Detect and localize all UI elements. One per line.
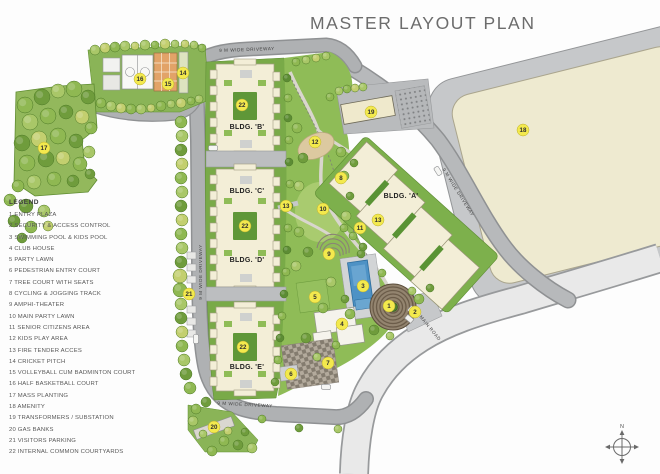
tree-icon (190, 41, 198, 49)
tree-icon (302, 56, 310, 64)
plan-marker-4: 4 (336, 318, 348, 330)
legend-heading: LEGEND (9, 199, 135, 206)
parking-bay (187, 276, 196, 283)
tree-icon (408, 287, 416, 295)
tree-icon (116, 103, 126, 113)
plan-marker-5: 5 (309, 291, 321, 303)
tree-icon (298, 153, 308, 163)
plan-marker-21: 21 (183, 288, 195, 300)
tree-icon (176, 340, 188, 352)
building-c-label: BLDG. 'C' (230, 188, 265, 195)
tree-icon (292, 123, 302, 133)
tree-icon (14, 135, 30, 151)
plan-marker-2: 2 (409, 306, 421, 318)
page-title: MASTER LAYOUT PLAN (310, 13, 536, 34)
connector-d-e (206, 287, 286, 301)
tree-icon (100, 43, 110, 53)
tree-icon (47, 172, 61, 186)
tree-icon (301, 333, 311, 343)
svg-text:18: 18 (520, 127, 527, 134)
tree-icon (201, 397, 211, 407)
legend-items: 1 ENTRY PLAZA2 SECURITY & ACCESS CONTROL… (9, 210, 135, 459)
legend-item: 21 VISITORS PARKING (9, 436, 135, 447)
plan-marker-9: 9 (323, 248, 335, 260)
parking-bay (187, 264, 196, 271)
tree-icon (187, 97, 195, 105)
tree-icon (359, 83, 367, 91)
tree-icon (90, 45, 100, 55)
svg-text:13: 13 (283, 203, 290, 210)
tree-icon (326, 93, 334, 101)
plan-marker-3: 3 (357, 280, 369, 292)
plan-marker-12: 12 (309, 136, 321, 148)
tree-icon (175, 228, 187, 240)
tree-icon (136, 104, 146, 114)
tree-icon (176, 242, 188, 254)
tree-icon (224, 427, 232, 435)
svg-text:19: 19 (368, 109, 375, 116)
tree-icon (258, 415, 266, 423)
tree-icon (334, 425, 342, 433)
legend-item: 17 MASS PLANTING (9, 391, 135, 402)
tree-icon (66, 81, 82, 97)
tree-icon (180, 368, 192, 380)
plan-marker-18: 18 (517, 124, 529, 136)
legend-item: 3 SWIMMING POOL & KIDS POOL (9, 233, 135, 244)
legend-item: 2 SECURITY & ACCESS CONTROL (9, 221, 135, 232)
tree-icon (386, 332, 394, 340)
legend-item: 20 GAS BANKS (9, 425, 135, 436)
tree-icon (73, 157, 87, 171)
tree-icon (241, 428, 249, 436)
car-icon (321, 384, 330, 389)
plan-marker-14: 14 (177, 67, 189, 79)
tree-icon (271, 378, 279, 386)
tree-icon (51, 84, 65, 98)
legend-item: 13 FIRE TENDER ACCES (9, 346, 135, 357)
svg-text:10: 10 (320, 206, 327, 213)
tree-icon (278, 312, 286, 320)
tree-icon (160, 39, 170, 49)
tree-icon (284, 114, 292, 122)
tree-icon (67, 175, 79, 187)
svg-text:22: 22 (239, 102, 246, 109)
svg-text:20: 20 (211, 424, 218, 431)
tree-icon (176, 214, 188, 226)
svg-text:5: 5 (313, 294, 317, 301)
tree-icon (175, 298, 187, 310)
tree-icon (59, 105, 73, 119)
tree-icon (345, 309, 355, 319)
tree-icon (175, 144, 187, 156)
tree-icon (294, 227, 304, 237)
tree-icon (294, 181, 304, 191)
tree-icon (175, 200, 187, 212)
tree-icon (284, 94, 292, 102)
tree-icon (175, 312, 187, 324)
tree-icon (195, 95, 203, 103)
tree-icon (151, 41, 159, 49)
legend-item: 14 CRICKET PITCH (9, 357, 135, 368)
tree-icon (176, 186, 188, 198)
tree-icon (167, 100, 175, 108)
tree-icon (274, 356, 282, 364)
tree-icon (332, 341, 340, 349)
tree-icon (312, 54, 320, 62)
tree-icon (110, 42, 120, 52)
legend-item: 19 TRANSFORMERS / SUBSTATION (9, 413, 135, 424)
tree-icon (340, 224, 348, 232)
tree-icon (19, 155, 35, 171)
tree-icon (27, 175, 41, 189)
parking-bay (187, 252, 196, 259)
tree-icon (175, 172, 187, 184)
svg-text:1: 1 (387, 303, 391, 310)
tree-icon (199, 430, 207, 438)
car-icon (209, 146, 218, 151)
svg-text:9: 9 (327, 251, 331, 258)
svg-text:22: 22 (240, 344, 247, 351)
tree-icon (378, 269, 386, 277)
car-icon (433, 166, 442, 176)
tree-icon (284, 224, 292, 232)
svg-text:21: 21 (186, 291, 193, 298)
tree-icon (188, 416, 198, 426)
building-b-label: BLDG. 'B' (230, 124, 265, 131)
tree-icon (120, 41, 130, 51)
tree-icon (286, 180, 294, 188)
tree-icon (357, 250, 365, 258)
tree-icon (171, 40, 179, 48)
svg-text:16: 16 (137, 76, 144, 83)
legend-item: 18 AMENITY (9, 402, 135, 413)
tree-icon (181, 40, 189, 48)
tree-icon (280, 290, 288, 298)
tree-icon (351, 84, 359, 92)
svg-text:11: 11 (357, 225, 364, 232)
tree-icon (56, 151, 70, 165)
svg-text:12: 12 (312, 139, 319, 146)
plan-marker-11: 11 (354, 222, 366, 234)
tree-icon (126, 104, 136, 114)
tree-icon (85, 122, 97, 134)
tree-icon (85, 169, 95, 179)
legend-item: 10 MAIN PARTY LAWN (9, 312, 135, 323)
tree-icon (50, 128, 66, 144)
svg-text:2: 2 (413, 309, 417, 316)
tree-icon (219, 436, 229, 446)
tree-icon (295, 424, 303, 432)
legend-item: 15 VOLLEYBALL CUM BADMINTON COURT (9, 368, 135, 379)
plan-marker-15: 15 (162, 78, 174, 90)
tree-icon (156, 101, 166, 111)
legend-item: 12 KIDS PLAY AREA (9, 334, 135, 345)
tree-icon (207, 446, 217, 456)
tree-icon (247, 443, 257, 453)
legend-item: 9 AMPHI-THEATER (9, 300, 135, 311)
master-layout-plan-page: 9 M WIDE DRIVEWAY9 M WIDE DRIVEWAY9 M WI… (0, 0, 660, 474)
plan-marker-22: 22 (236, 99, 248, 111)
tree-icon (322, 52, 330, 60)
tree-icon (22, 114, 38, 130)
legend-item: 6 PEDESTRIAN ENTRY COURT (9, 266, 135, 277)
building-a-label: BLDG. 'A' (384, 193, 419, 200)
road-label: 9 M WIDE DRIVEWAY (198, 244, 203, 300)
legend-item: 4 CLUB HOUSE (9, 244, 135, 255)
tree-icon (283, 246, 291, 254)
tree-icon (313, 353, 321, 361)
plan-marker-17: 17 (38, 142, 50, 154)
tree-icon (176, 98, 186, 108)
compass-icon: N (605, 424, 639, 464)
tree-icon (83, 146, 95, 158)
tree-icon (75, 110, 89, 124)
svg-text:22: 22 (242, 223, 249, 230)
tree-icon (173, 269, 187, 283)
tree-icon (12, 180, 24, 192)
legend: LEGEND 1 ENTRY PLAZA2 SECURITY & ACCESS … (9, 199, 135, 459)
tree-icon (303, 247, 313, 257)
tree-icon (175, 116, 187, 128)
tree-icon (147, 104, 155, 112)
plan-marker-1: 1 (383, 300, 395, 312)
plan-marker-22: 22 (237, 341, 249, 353)
tree-icon (349, 232, 357, 240)
tree-icon (343, 85, 351, 93)
tree-icon (184, 382, 196, 394)
tree-icon (318, 303, 328, 313)
svg-text:13: 13 (375, 217, 382, 224)
svg-text:4: 4 (340, 321, 344, 328)
tree-icon (176, 326, 188, 338)
tree-icon (106, 101, 116, 111)
legend-item: 16 HALF BASKETBALL COURT (9, 379, 135, 390)
tree-icon (291, 261, 301, 271)
plan-marker-8: 8 (335, 172, 347, 184)
tree-icon (341, 211, 351, 221)
svg-text:15: 15 (165, 81, 172, 88)
car-icon (194, 335, 199, 344)
tree-icon (233, 440, 243, 450)
tree-icon (292, 58, 300, 66)
compass-north-label: N (620, 424, 624, 430)
plan-marker-10: 10 (317, 203, 329, 215)
tree-icon (369, 325, 379, 335)
tree-icon (414, 294, 424, 304)
parking-bay (187, 318, 196, 325)
svg-text:17: 17 (41, 145, 48, 152)
legend-item: 1 ENTRY PLAZA (9, 210, 135, 221)
parking-bay (187, 306, 196, 313)
tree-icon (341, 295, 349, 303)
plan-marker-13: 13 (280, 200, 292, 212)
tree-icon (198, 44, 206, 52)
tree-icon (191, 404, 201, 414)
tree-icon (335, 87, 343, 95)
tree-icon (69, 134, 83, 148)
plan-marker-19: 19 (365, 106, 377, 118)
tree-icon (359, 243, 367, 251)
plan-marker-16: 16 (134, 73, 146, 85)
tree-icon (276, 334, 284, 342)
tree-icon (34, 89, 50, 105)
tree-icon (326, 277, 336, 287)
legend-item: 5 PARTY LAWN (9, 255, 135, 266)
tree-icon (131, 42, 139, 50)
tree-icon (285, 158, 293, 166)
svg-text:3: 3 (361, 283, 365, 290)
svg-text:6: 6 (289, 371, 293, 378)
tree-icon (350, 159, 358, 167)
tree-icon (282, 268, 290, 276)
plan-marker-20: 20 (208, 421, 220, 433)
legend-item: 8 CYCLING & JOGGING TRACK (9, 289, 135, 300)
legend-item: 11 SENIOR CITIZENS AREA (9, 323, 135, 334)
tree-icon (426, 284, 434, 292)
tree-icon (175, 256, 187, 268)
svg-text:7: 7 (326, 360, 330, 367)
svg-text:8: 8 (339, 175, 343, 182)
tree-icon (283, 74, 291, 82)
svg-text:14: 14 (180, 70, 187, 77)
plan-marker-13: 13 (372, 214, 384, 226)
tree-icon (40, 108, 56, 124)
tree-icon (140, 40, 150, 50)
building-e-label: BLDG. 'E' (230, 364, 264, 371)
building-d-label: BLDG. 'D' (230, 257, 265, 264)
tree-icon (336, 147, 346, 157)
tree-icon (81, 90, 95, 104)
tree-icon (96, 98, 106, 108)
tree-icon (176, 158, 188, 170)
legend-item: 7 TREE COURT WITH SEATS (9, 278, 135, 289)
plan-marker-7: 7 (322, 357, 334, 369)
legend-item: 22 INTERNAL COMMON COURTYARDS (9, 447, 135, 458)
plan-marker-22: 22 (239, 220, 251, 232)
tree-icon (178, 354, 190, 366)
tree-icon (176, 130, 188, 142)
tree-icon (17, 97, 33, 113)
plan-marker-6: 6 (285, 368, 297, 380)
tree-icon (346, 192, 354, 200)
tree-icon (285, 136, 293, 144)
